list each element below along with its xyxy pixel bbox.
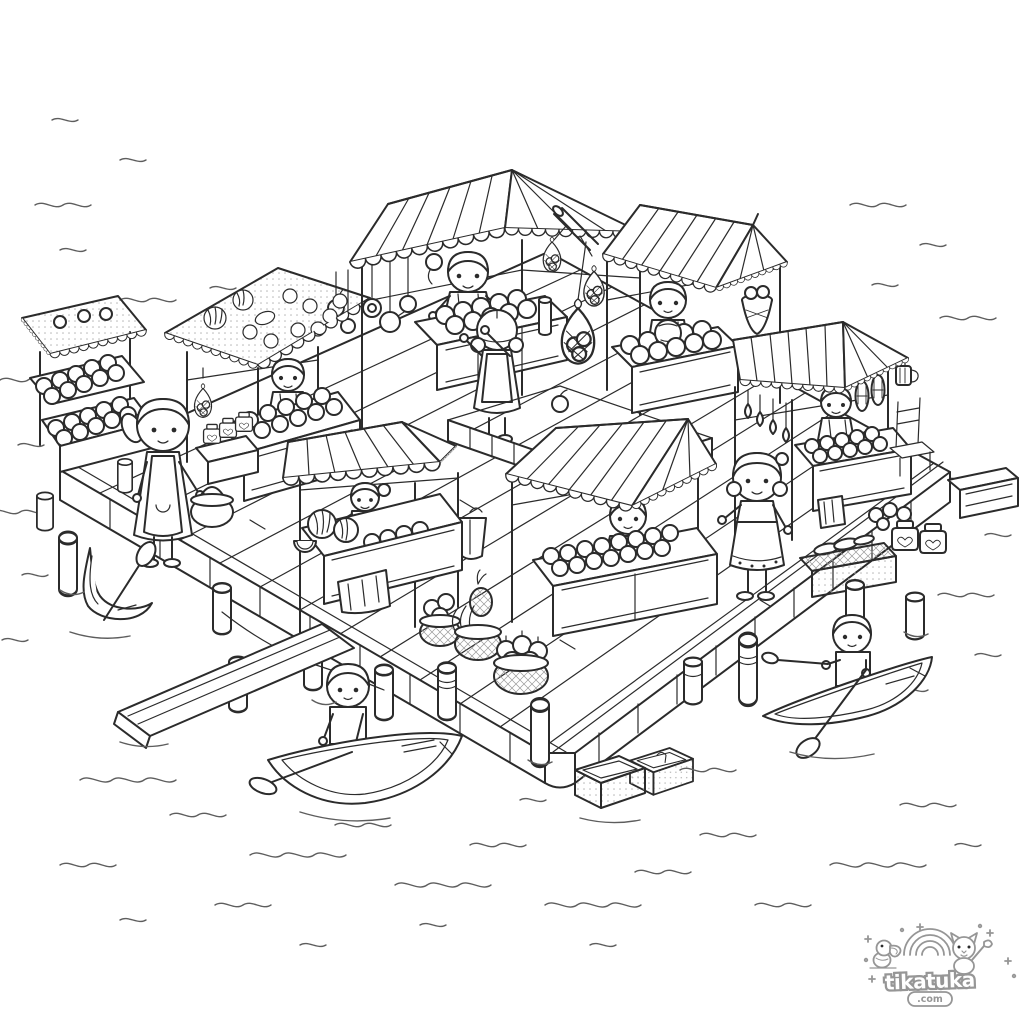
- fruit-pattern-awning: [163, 268, 373, 371]
- boy-rower-right: [822, 615, 871, 686]
- pineapple-banana-basket: [452, 570, 501, 660]
- tikatuka-logo: tikatuka .com: [865, 924, 1016, 1006]
- oar-to-dock: [761, 651, 828, 665]
- right-edge-crate: [948, 468, 1018, 518]
- jar-shelf: [196, 412, 258, 484]
- floating-market-illustration: tikatuka .com: [0, 0, 1024, 1024]
- stall-far-left-fruit-shelves: [20, 296, 152, 472]
- stall-center: [283, 422, 486, 633]
- hanging-net-bag-left: [195, 368, 212, 417]
- rainbow-icon: [904, 929, 956, 955]
- logo-brand-text: tikatuka: [884, 967, 975, 994]
- empty-boat: [84, 539, 160, 620]
- vendor-boy-right-stall: [818, 387, 854, 440]
- far-left-awning: [20, 296, 147, 359]
- striped-awning-top-right: [601, 205, 788, 294]
- striped-awning-top-center: [350, 170, 640, 270]
- striped-awning-center-right: [504, 419, 718, 512]
- toucan-icon: [870, 941, 901, 969]
- hanging-pans: [363, 254, 416, 332]
- apple-basket: [494, 631, 548, 694]
- hull-left: [268, 733, 462, 804]
- watermelon-counter: [294, 494, 462, 613]
- towel: [818, 496, 845, 528]
- stall-center-right: [504, 419, 718, 636]
- woman-shopper: [718, 453, 792, 600]
- coloring-page: tikatuka .com: [0, 0, 1024, 1024]
- logo-suffix-text: .com: [917, 994, 943, 1005]
- gourd-basket: [420, 594, 460, 646]
